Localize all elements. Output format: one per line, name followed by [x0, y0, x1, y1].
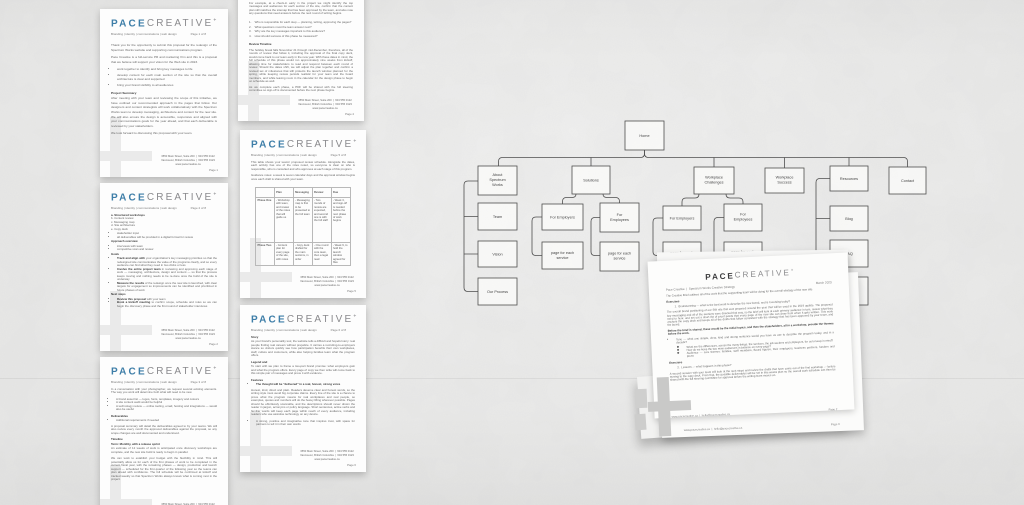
svg-text:Workplace: Workplace — [776, 176, 794, 180]
svg-text:Spectrum: Spectrum — [489, 178, 505, 182]
svg-text:Works: Works — [492, 183, 503, 187]
svg-text:For Employers: For Employers — [550, 216, 575, 220]
svg-text:About: About — [493, 173, 504, 177]
svg-text:Blog: Blog — [845, 217, 853, 221]
svg-text:Our Process: Our Process — [487, 290, 508, 294]
svg-text:Employees: Employees — [610, 218, 629, 222]
svg-text:page for each: page for each — [551, 251, 574, 255]
svg-text:For: For — [740, 213, 746, 217]
svg-text:Resources: Resources — [840, 177, 858, 181]
svg-text:Success: Success — [777, 181, 791, 185]
svg-text:For Employers: For Employers — [670, 217, 695, 221]
svg-text:Employees: Employees — [734, 218, 753, 222]
svg-text:Home: Home — [639, 134, 649, 138]
svg-text:service: service — [613, 257, 625, 261]
svg-text:Solutions: Solutions — [583, 179, 599, 183]
svg-text:service: service — [556, 256, 568, 260]
svg-text:Challenges: Challenges — [705, 181, 724, 185]
svg-text:Team: Team — [493, 215, 502, 219]
svg-text:page for each: page for each — [608, 252, 631, 256]
svg-text:Contact: Contact — [901, 179, 915, 183]
svg-text:For: For — [617, 213, 623, 217]
svg-text:Vision: Vision — [492, 253, 502, 257]
svg-text:Workplace: Workplace — [705, 176, 723, 180]
